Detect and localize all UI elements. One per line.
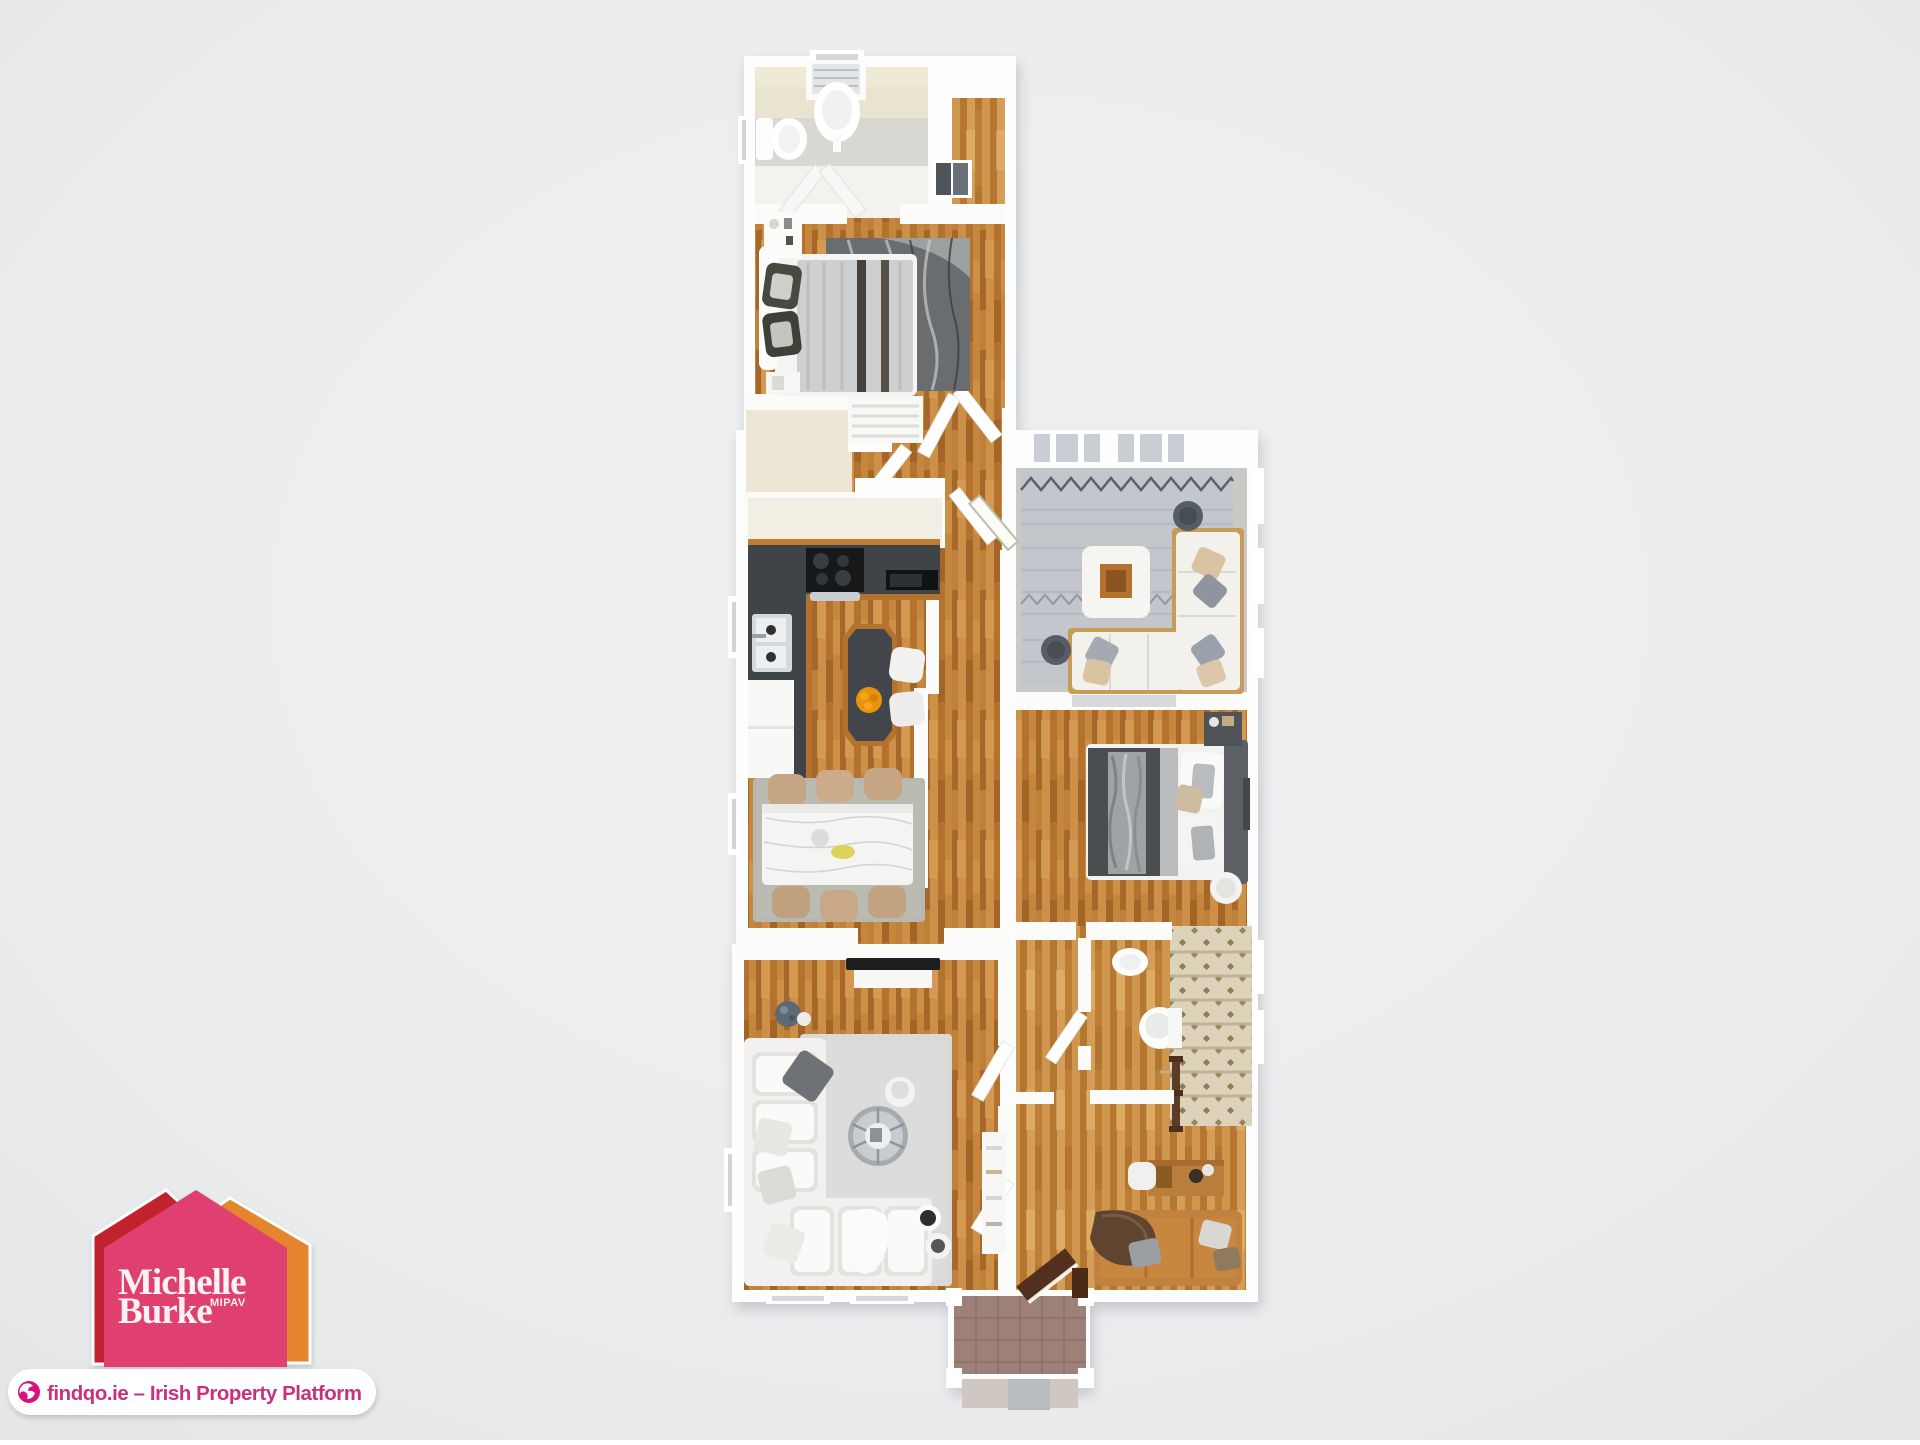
svg-text:findqo.ie – Irish Property Pla: findqo.ie – Irish Property Platform: [47, 1383, 362, 1405]
svg-text:MIPAV: MIPAV: [210, 1297, 246, 1309]
svg-text:Burke: Burke: [118, 1291, 212, 1332]
